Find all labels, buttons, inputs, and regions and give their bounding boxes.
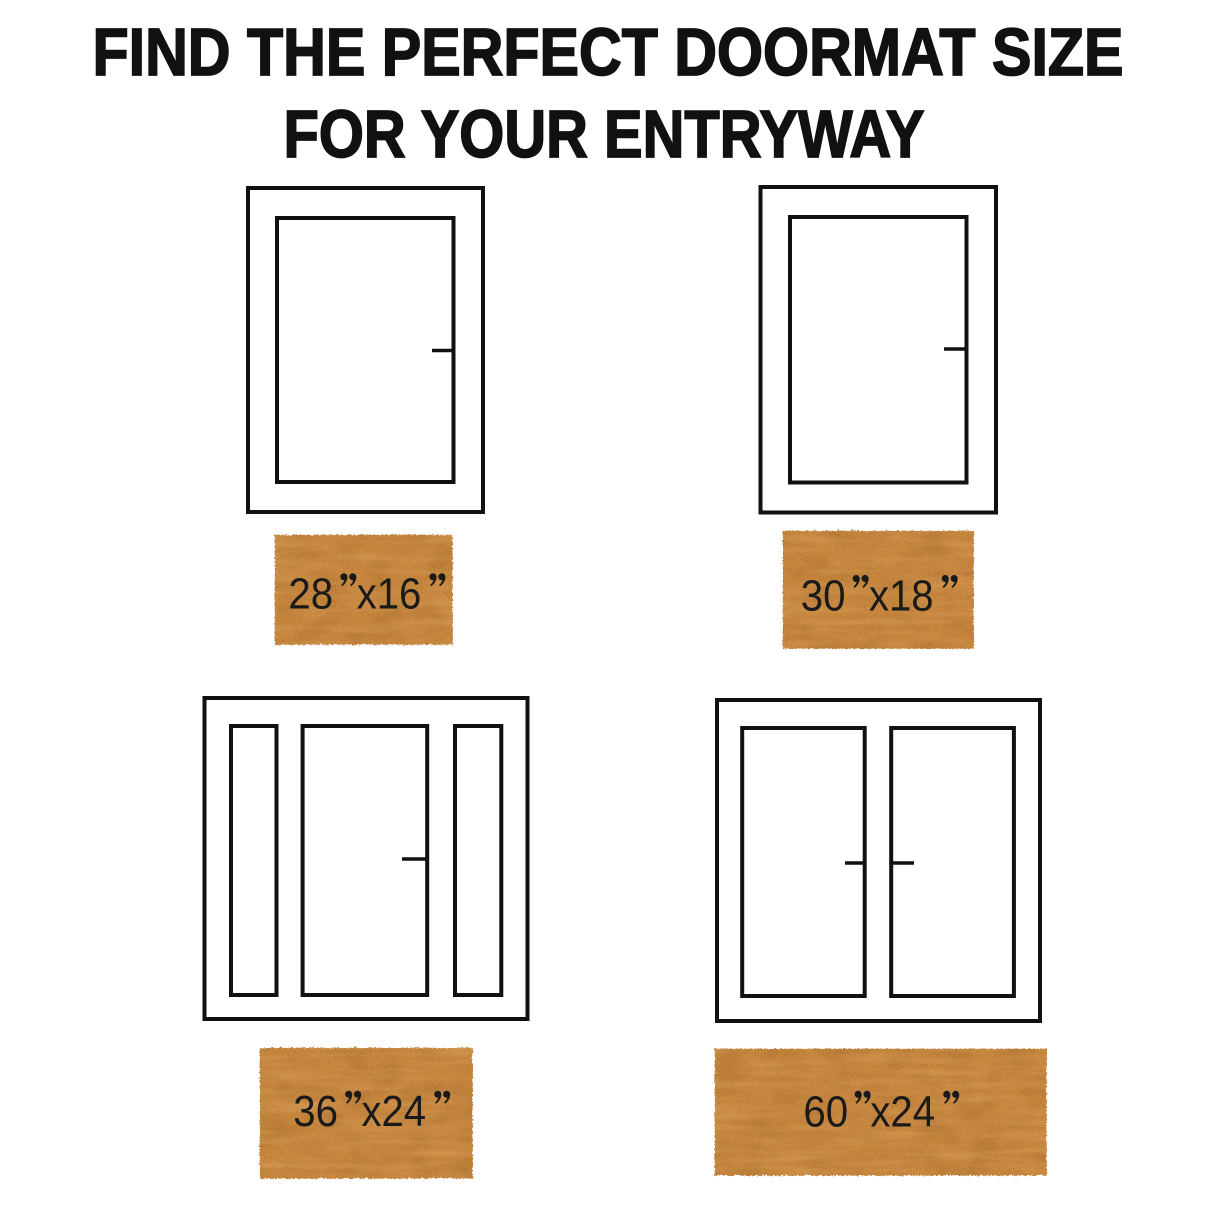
svg-text:x24: x24	[362, 1087, 427, 1136]
svg-text:28: 28	[288, 570, 333, 619]
svg-text:x24: x24	[870, 1088, 935, 1137]
svg-text:x18: x18	[869, 572, 934, 621]
svg-text:FIND THE PERFECT DOORMAT SIZE: FIND THE PERFECT DOORMAT SIZE	[93, 15, 1124, 90]
svg-text:x16: x16	[357, 570, 422, 619]
svg-text:FOR YOUR ENTRYWAY: FOR YOUR ENTRYWAY	[284, 97, 925, 172]
svg-text:60: 60	[803, 1088, 848, 1137]
svg-text:36: 36	[293, 1087, 338, 1136]
svg-text:30: 30	[801, 572, 846, 621]
